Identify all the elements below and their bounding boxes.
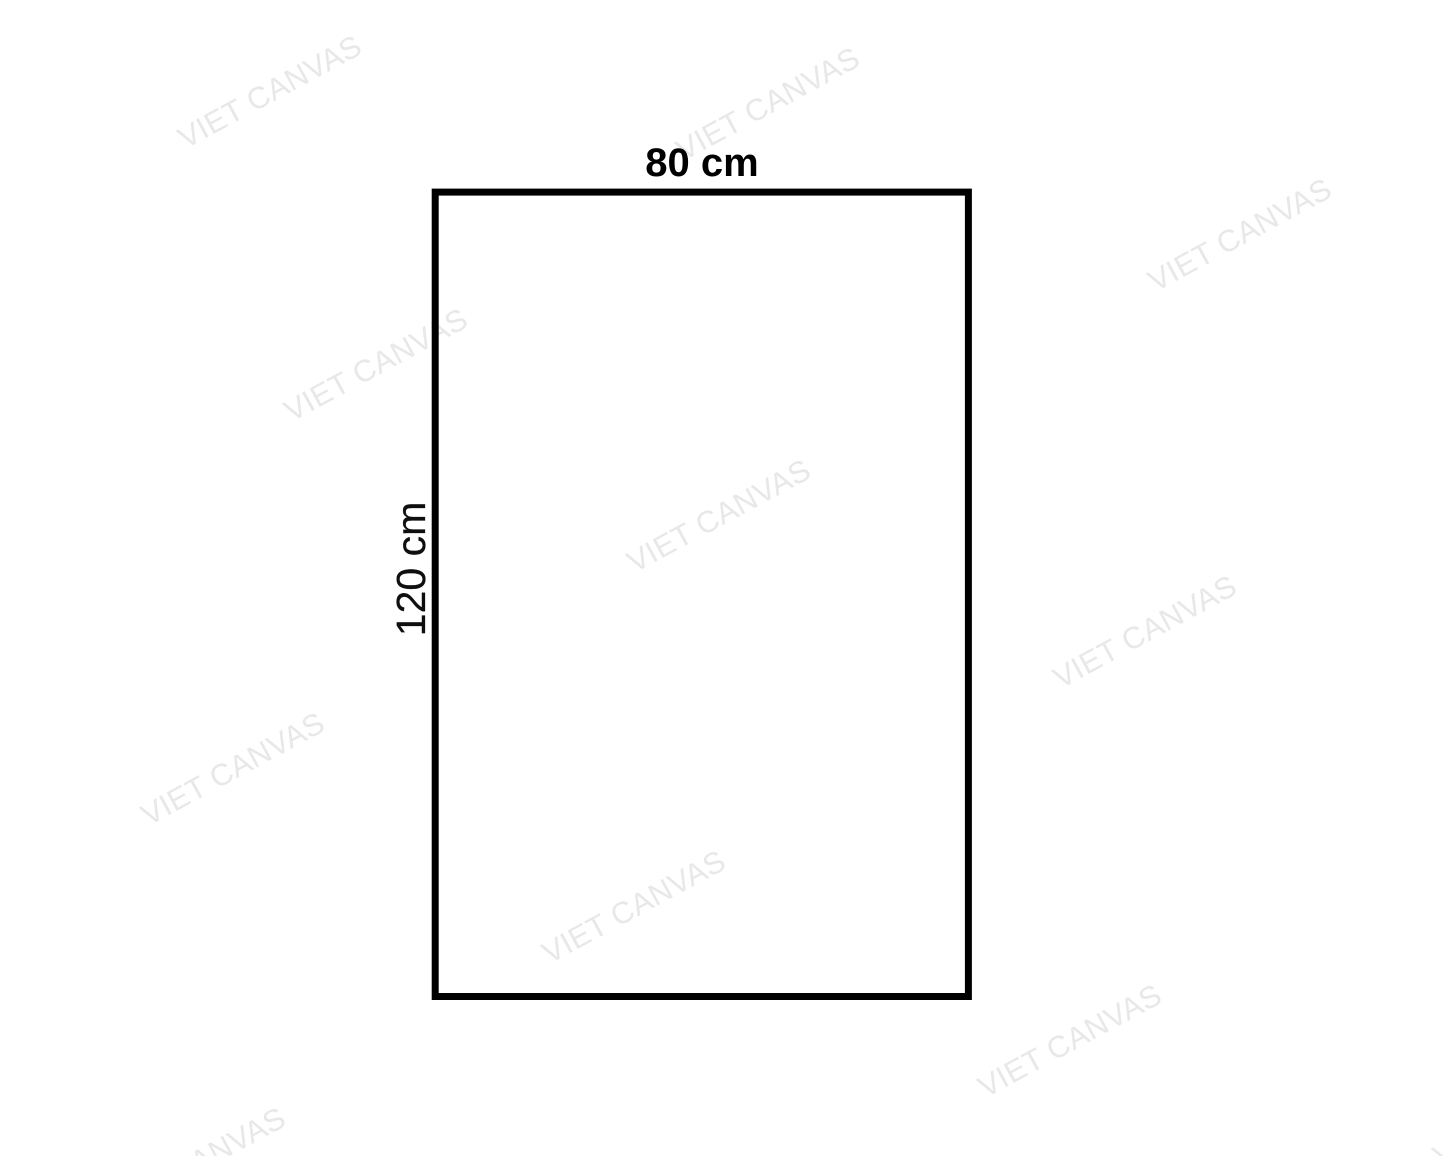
svg-text:80 cm: 80 cm bbox=[645, 141, 758, 185]
svg-text:VIET CANVAS: VIET CANVAS bbox=[1143, 172, 1338, 299]
svg-text:VIET CANVAS: VIET CANVAS bbox=[136, 706, 331, 833]
svg-text:VIET CANVAS: VIET CANVAS bbox=[1428, 1047, 1445, 1156]
svg-text:VIET CANVAS: VIET CANVAS bbox=[622, 453, 817, 580]
svg-text:VIET CANVAS: VIET CANVAS bbox=[1048, 569, 1243, 696]
svg-text:VIET CANVAS: VIET CANVAS bbox=[537, 844, 732, 971]
svg-text:VIET CANVAS: VIET CANVAS bbox=[973, 978, 1168, 1105]
svg-text:VIET CANVAS: VIET CANVAS bbox=[173, 29, 368, 156]
svg-text:120 cm: 120 cm bbox=[388, 502, 434, 636]
svg-text:VIET CANVAS: VIET CANVAS bbox=[97, 1101, 292, 1156]
svg-text:VIET CANVAS: VIET CANVAS bbox=[279, 302, 474, 429]
